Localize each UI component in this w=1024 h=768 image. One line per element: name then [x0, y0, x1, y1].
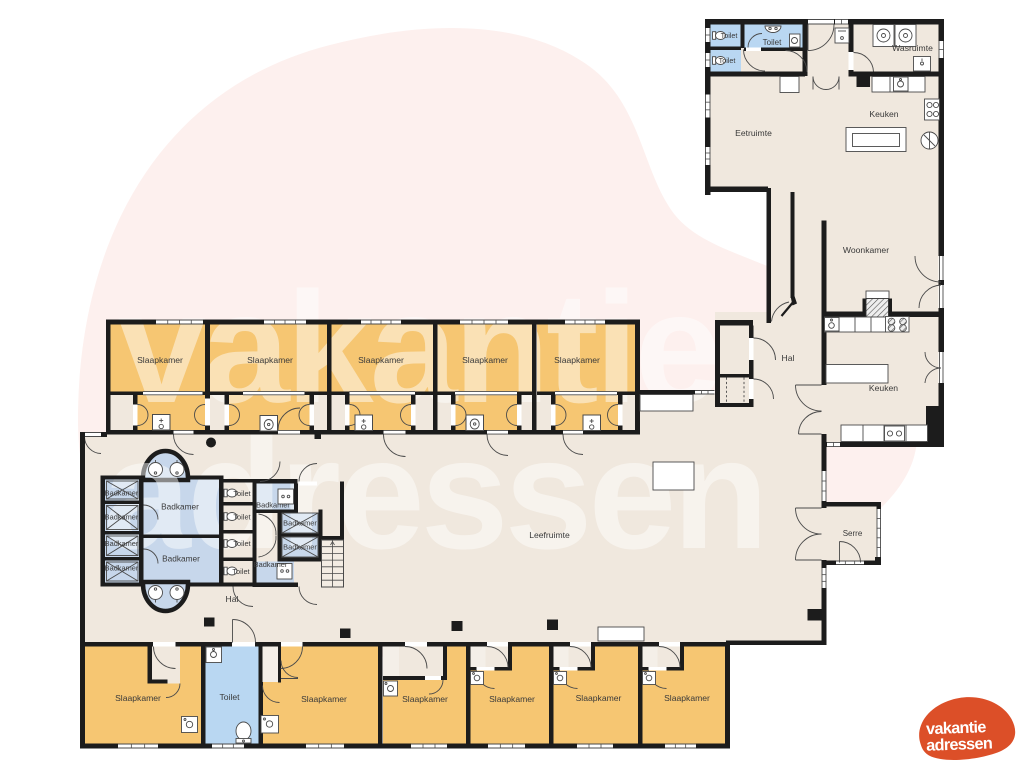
svg-text:Slaapkamer: Slaapkamer [247, 355, 293, 365]
svg-text:Slaapkamer: Slaapkamer [462, 355, 508, 365]
svg-text:Toilet: Toilet [219, 692, 240, 702]
svg-text:Slaapkamer: Slaapkamer [301, 694, 347, 704]
svg-text:Toilet: Toilet [232, 567, 249, 576]
svg-text:Keuken: Keuken [869, 109, 898, 119]
svg-text:Badkamer: Badkamer [105, 539, 139, 548]
svg-text:Badkamer: Badkamer [161, 502, 199, 512]
svg-text:Slaapkamer: Slaapkamer [402, 694, 448, 704]
svg-text:Badkamer: Badkamer [283, 519, 317, 528]
svg-text:Eetruimte: Eetruimte [735, 128, 772, 138]
svg-text:Keuken: Keuken [869, 383, 898, 393]
svg-text:adressen: adressen [926, 734, 992, 754]
svg-text:Wasruimte: Wasruimte [892, 43, 933, 53]
svg-text:Badkamer: Badkamer [256, 501, 290, 510]
svg-text:Badkamer: Badkamer [254, 560, 288, 569]
svg-text:Toilet: Toilet [233, 539, 250, 548]
svg-text:Slaapkamer: Slaapkamer [664, 693, 710, 703]
svg-text:Woonkamer: Woonkamer [843, 245, 889, 255]
svg-text:Toilet: Toilet [233, 489, 250, 498]
svg-text:Slaapkamer: Slaapkamer [115, 693, 161, 703]
svg-text:Hal: Hal [782, 353, 795, 363]
svg-text:Badkamer: Badkamer [105, 564, 139, 573]
svg-text:Badkamer: Badkamer [105, 489, 139, 498]
svg-text:Hal: Hal [226, 594, 239, 604]
svg-text:Toilet: Toilet [233, 513, 250, 522]
svg-text:Slaapkamer: Slaapkamer [489, 694, 535, 704]
svg-text:Badkamer: Badkamer [283, 543, 317, 552]
svg-text:Slaapkamer: Slaapkamer [137, 355, 183, 365]
svg-text:Toilet: Toilet [719, 56, 736, 65]
svg-text:Slaapkamer: Slaapkamer [576, 693, 622, 703]
svg-text:Toilet: Toilet [721, 31, 738, 40]
svg-text:Slaapkamer: Slaapkamer [554, 355, 600, 365]
svg-text:Slaapkamer: Slaapkamer [358, 355, 404, 365]
svg-text:Badkamer: Badkamer [162, 554, 200, 564]
svg-text:Badkamer: Badkamer [105, 513, 139, 522]
svg-text:Serre: Serre [843, 529, 863, 538]
svg-text:Toilet: Toilet [763, 38, 782, 47]
svg-text:Leefruimte: Leefruimte [529, 530, 570, 540]
